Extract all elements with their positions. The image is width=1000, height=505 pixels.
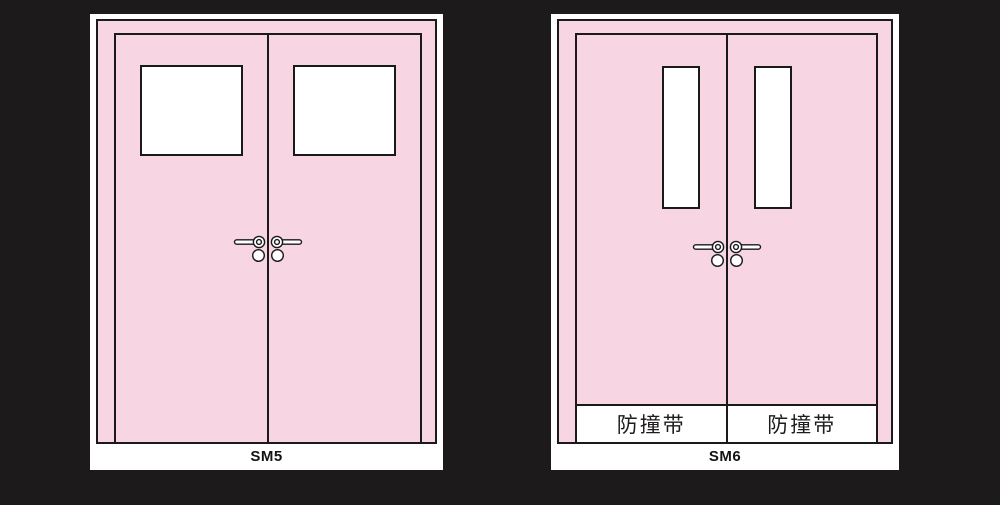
anti-collision-strip-label: 防撞带 xyxy=(767,409,836,439)
vision-window xyxy=(140,65,244,156)
door-frame: 防撞带 防撞带 xyxy=(557,19,893,444)
vision-window xyxy=(293,65,397,156)
door-leaves: 防撞带 防撞带 xyxy=(575,33,878,442)
anti-collision-strip: 防撞带 xyxy=(577,404,726,442)
door-frame xyxy=(96,19,437,444)
door-figure-sm5: SM5 xyxy=(90,14,443,470)
door-figure-sm6: 防撞带 防撞带 xyxy=(551,14,899,470)
anti-collision-strip-label: 防撞带 xyxy=(617,409,686,439)
figure-label-sm6: SM6 xyxy=(551,448,899,465)
figure-label-sm5: SM5 xyxy=(90,448,443,465)
vision-window xyxy=(662,66,700,209)
diagram-canvas: SM5 防撞带 防撞带 xyxy=(0,0,1000,505)
vision-window xyxy=(754,66,792,209)
door-leaves xyxy=(114,33,422,442)
door-handles-icon xyxy=(226,232,310,276)
door-handles-icon xyxy=(685,237,769,281)
anti-collision-strip: 防撞带 xyxy=(728,404,877,442)
